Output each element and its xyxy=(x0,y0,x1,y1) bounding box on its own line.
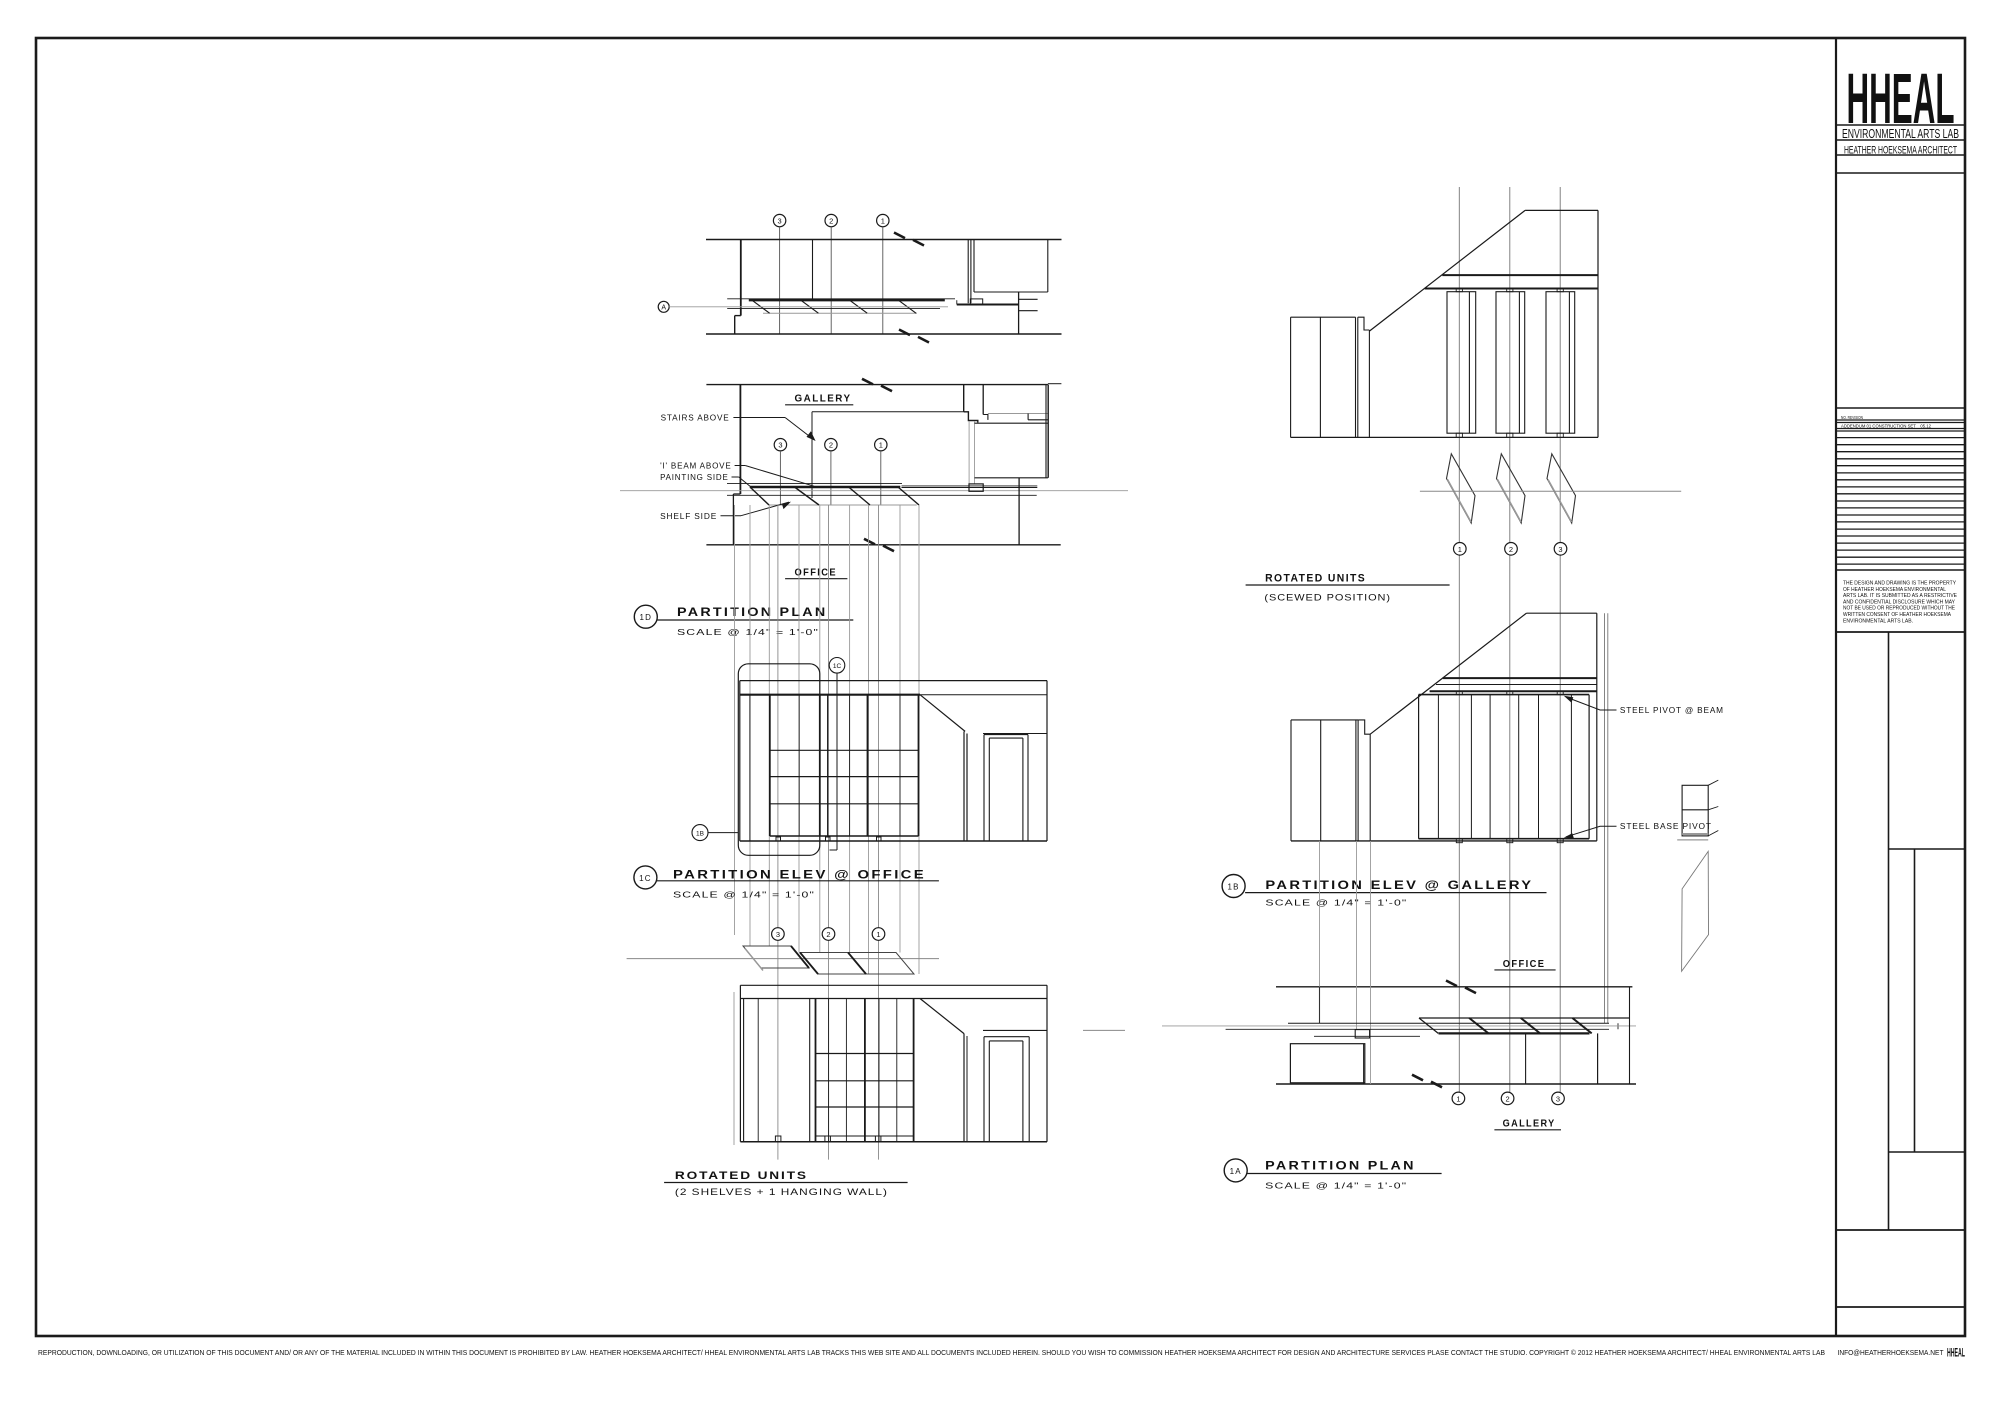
svg-text:OFFICE: OFFICE xyxy=(795,568,838,579)
svg-text:ARTS LAB. IT IS SUBMITTED AS: ARTS LAB. IT IS SUBMITTED AS A RESTRICTI… xyxy=(1843,593,1957,599)
svg-text:1: 1 xyxy=(879,441,883,450)
svg-text:REPRODUCTION, DOWNLOADING, OR: REPRODUCTION, DOWNLOADING, OR UTILIZATIO… xyxy=(38,1348,1825,1357)
svg-text:PARTITION ELEV @ OFFICE: PARTITION ELEV @ OFFICE xyxy=(673,869,926,881)
svg-text:1B: 1B xyxy=(1228,883,1240,892)
svg-text:ENVIRONMENTAL ARTS LAB.: ENVIRONMENTAL ARTS LAB. xyxy=(1843,618,1913,624)
svg-text:A: A xyxy=(661,304,666,311)
svg-text:1C: 1C xyxy=(639,874,652,883)
svg-text:STEEL PIVOT @ BEAM: STEEL PIVOT @ BEAM xyxy=(1620,706,1724,715)
svg-text:THE DESIGN AND DRAWING IS THE: THE DESIGN AND DRAWING IS THE PROPERTY xyxy=(1843,581,1956,587)
svg-text:INFO@HEATHERHOEKSEMA.NET: INFO@HEATHERHOEKSEMA.NET xyxy=(1838,1348,1944,1357)
svg-text:ROTATED UNITS: ROTATED UNITS xyxy=(1265,573,1366,585)
svg-text:2: 2 xyxy=(826,930,830,939)
svg-text:GALLERY: GALLERY xyxy=(1503,1119,1556,1130)
svg-text:(2 SHELVES + 1 HANGING WALL): (2 SHELVES + 1 HANGING WALL) xyxy=(675,1187,888,1198)
svg-text:HHEAL: HHEAL xyxy=(1947,1346,1965,1360)
svg-text:OFFICE: OFFICE xyxy=(1503,959,1546,970)
svg-text:NO. REVISION: NO. REVISION xyxy=(1841,415,1863,420)
svg-text:1B: 1B xyxy=(696,830,704,837)
svg-text:3: 3 xyxy=(1556,1094,1560,1103)
svg-text:SCALE @ 1/4" = 1'-0": SCALE @ 1/4" = 1'-0" xyxy=(677,627,819,637)
svg-text:(SCEWED POSITION): (SCEWED POSITION) xyxy=(1264,593,1391,604)
svg-text:2: 2 xyxy=(829,441,833,450)
svg-text:2: 2 xyxy=(1509,545,1513,554)
svg-text:PAINTING SIDE: PAINTING SIDE xyxy=(660,473,729,482)
svg-text:2: 2 xyxy=(829,217,833,226)
svg-text:SCALE @ 1/4" = 1'-0": SCALE @ 1/4" = 1'-0" xyxy=(1265,1181,1407,1191)
svg-text:SHELF SIDE: SHELF SIDE xyxy=(660,512,717,521)
svg-text:3: 3 xyxy=(776,930,780,939)
svg-text:'I' BEAM ABOVE: 'I' BEAM ABOVE xyxy=(660,461,732,470)
svg-text:SCALE @ 1/4" = 1'-0": SCALE @ 1/4" = 1'-0" xyxy=(673,889,815,899)
svg-text:3: 3 xyxy=(778,217,782,226)
svg-text:SCALE @ 1/4" = 1'-0": SCALE @ 1/4" = 1'-0" xyxy=(1265,897,1407,907)
svg-text:1A: 1A xyxy=(1230,1167,1242,1176)
svg-text:3: 3 xyxy=(778,441,782,450)
svg-text:3: 3 xyxy=(1558,545,1562,554)
svg-text:OF HEATHER HOEKSEMA ENVIRONMEN: OF HEATHER HOEKSEMA ENVIRONMENTAL xyxy=(1843,587,1947,593)
svg-text:ROTATED UNITS: ROTATED UNITS xyxy=(675,1170,808,1182)
svg-text:STAIRS ABOVE: STAIRS ABOVE xyxy=(661,413,730,422)
svg-text:PARTITION PLAN: PARTITION PLAN xyxy=(677,607,828,619)
svg-text:1: 1 xyxy=(881,217,885,226)
svg-text:1: 1 xyxy=(1458,545,1462,554)
svg-text:WRITTEN CONSENT OF HEATHER HOE: WRITTEN CONSENT OF HEATHER HOEKSEMA xyxy=(1843,612,1951,618)
svg-text:ENVIRONMENTAL ARTS LAB: ENVIRONMENTAL ARTS LAB xyxy=(1842,127,1959,141)
svg-text:1: 1 xyxy=(876,930,880,939)
svg-text:STEEL BASE PIVOT: STEEL BASE PIVOT xyxy=(1620,822,1712,831)
svg-text:HEATHER HOEKSEMA ARCHITECT: HEATHER HOEKSEMA ARCHITECT xyxy=(1844,145,1957,157)
svg-text:1: 1 xyxy=(1456,1094,1460,1103)
svg-text:2: 2 xyxy=(1506,1094,1510,1103)
svg-text:GALLERY: GALLERY xyxy=(795,394,852,405)
svg-text:1C: 1C xyxy=(833,663,842,670)
svg-text:AND CONFIDENTIAL DISCLOSURE WH: AND CONFIDENTIAL DISCLOSURE WHICH MAY xyxy=(1843,599,1955,605)
svg-text:1D: 1D xyxy=(639,613,652,622)
svg-text:NOT BE USED OR REPRODUCED WITH: NOT BE USED OR REPRODUCED WITHOUT THE xyxy=(1843,606,1955,612)
svg-text:PARTITION PLAN: PARTITION PLAN xyxy=(1265,1161,1416,1173)
svg-text:PARTITION ELEV @ GALLERY: PARTITION ELEV @ GALLERY xyxy=(1265,880,1533,892)
svg-text:ADDENDUM 01 CONSTRUCTION SET: ADDENDUM 01 CONSTRUCTION SET 05.12 xyxy=(1841,424,1932,429)
